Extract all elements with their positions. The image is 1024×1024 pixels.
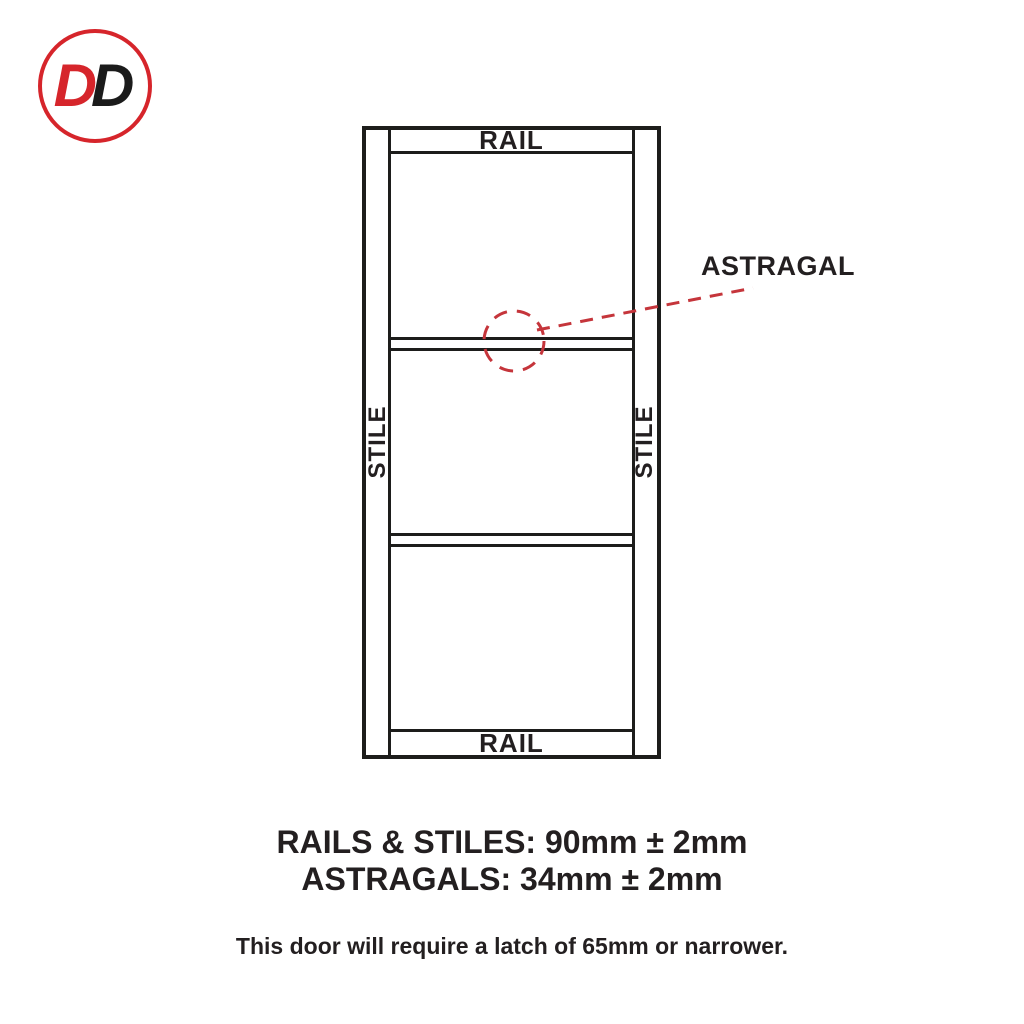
door-diagram: RAIL RAIL STILE STILE bbox=[362, 126, 661, 759]
rails-stiles-spec: RAILS & STILES: 90mm ± 2mm bbox=[0, 824, 1024, 861]
astragal-label: ASTRAGAL bbox=[701, 251, 855, 282]
brand-logo-letters: DD bbox=[54, 56, 137, 116]
astragal-2-top-line bbox=[391, 533, 632, 536]
latch-note: This door will require a latch of 65mm o… bbox=[0, 933, 1024, 960]
brand-logo: DD bbox=[38, 29, 152, 143]
astragal-1-top-line bbox=[391, 337, 632, 340]
bottom-rail-label: RAIL bbox=[391, 730, 632, 756]
astragal-1-bottom-line bbox=[391, 348, 632, 351]
specs-block: RAILS & STILES: 90mm ± 2mm ASTRAGALS: 34… bbox=[0, 824, 1024, 898]
logo-letter-d-black: D bbox=[91, 52, 128, 119]
top-rail-label: RAIL bbox=[391, 127, 632, 153]
logo-letter-d-red: D bbox=[54, 52, 91, 119]
right-stile-label: STILE bbox=[633, 405, 657, 478]
astragal-2-bottom-line bbox=[391, 544, 632, 547]
left-stile-label: STILE bbox=[366, 405, 390, 478]
astragals-spec: ASTRAGALS: 34mm ± 2mm bbox=[0, 861, 1024, 898]
